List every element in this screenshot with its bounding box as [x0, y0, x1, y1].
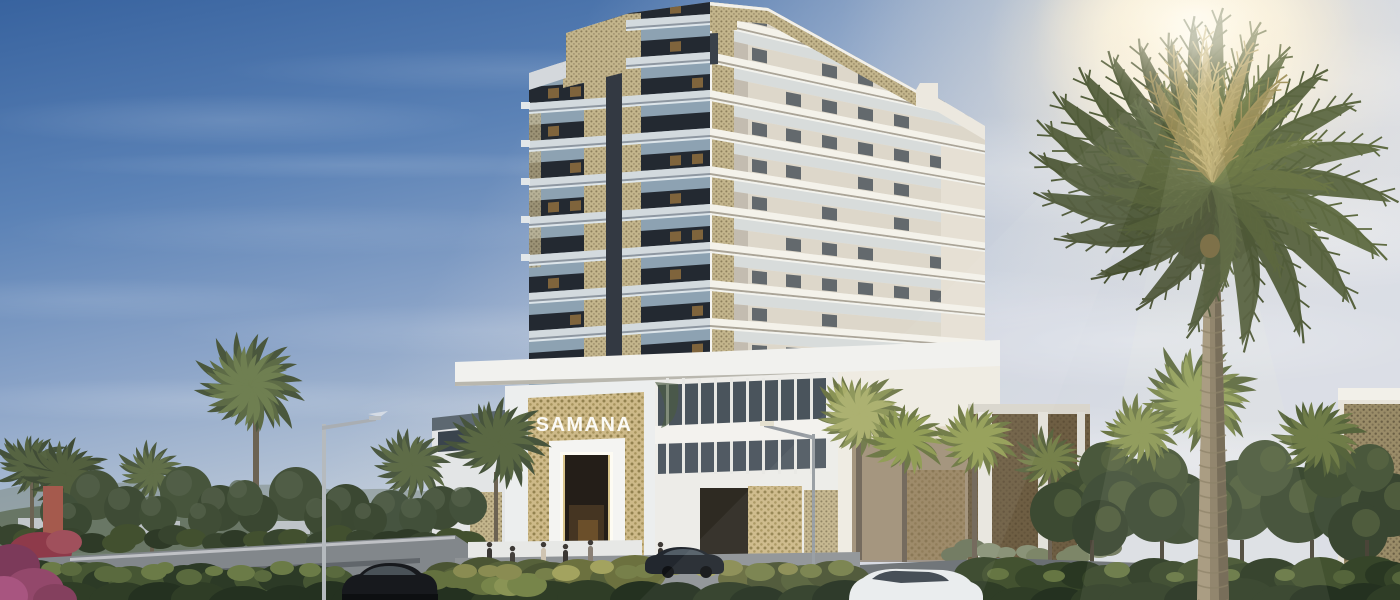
- svg-text:SAMANA: SAMANA: [536, 414, 633, 436]
